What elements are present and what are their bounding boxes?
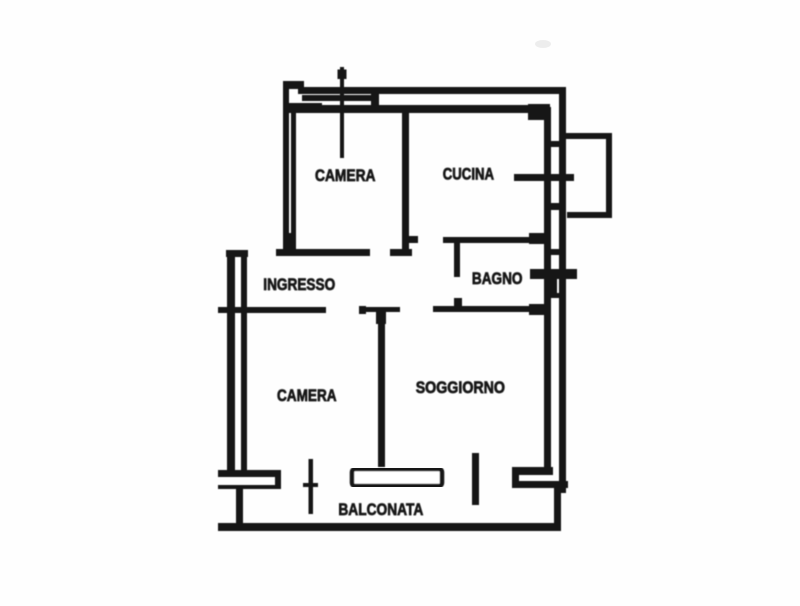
svg-text:CAMERA: CAMERA [315,166,376,185]
svg-text:CAMERA: CAMERA [277,386,337,405]
svg-text:INGRESSO: INGRESSO [263,275,335,294]
svg-text:BAGNO: BAGNO [472,269,523,288]
svg-text:CUCINA: CUCINA [443,165,494,184]
svg-text:SOGGIORNO: SOGGIORNO [416,378,505,397]
svg-text:BALCONATA: BALCONATA [338,500,423,519]
